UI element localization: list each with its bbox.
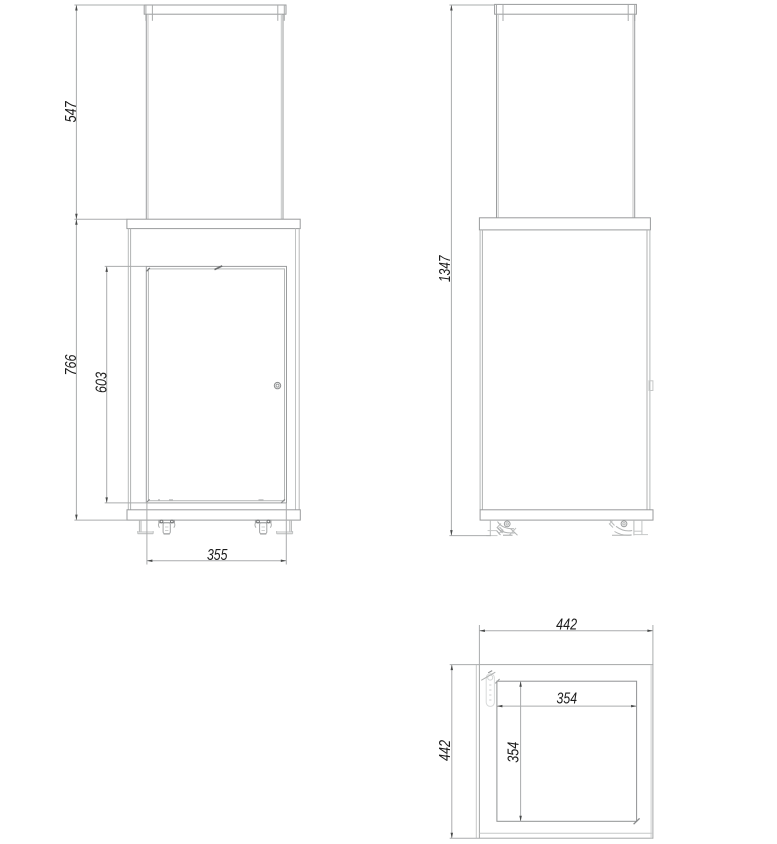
- svg-text:547: 547: [63, 101, 80, 123]
- svg-text:603: 603: [94, 372, 111, 393]
- svg-text:766: 766: [63, 354, 80, 375]
- svg-text:1347: 1347: [437, 255, 454, 282]
- svg-text:442: 442: [556, 616, 577, 633]
- svg-text:442: 442: [437, 740, 454, 761]
- svg-text:354: 354: [506, 742, 523, 763]
- svg-text:354: 354: [557, 691, 578, 708]
- svg-text:355: 355: [207, 547, 228, 564]
